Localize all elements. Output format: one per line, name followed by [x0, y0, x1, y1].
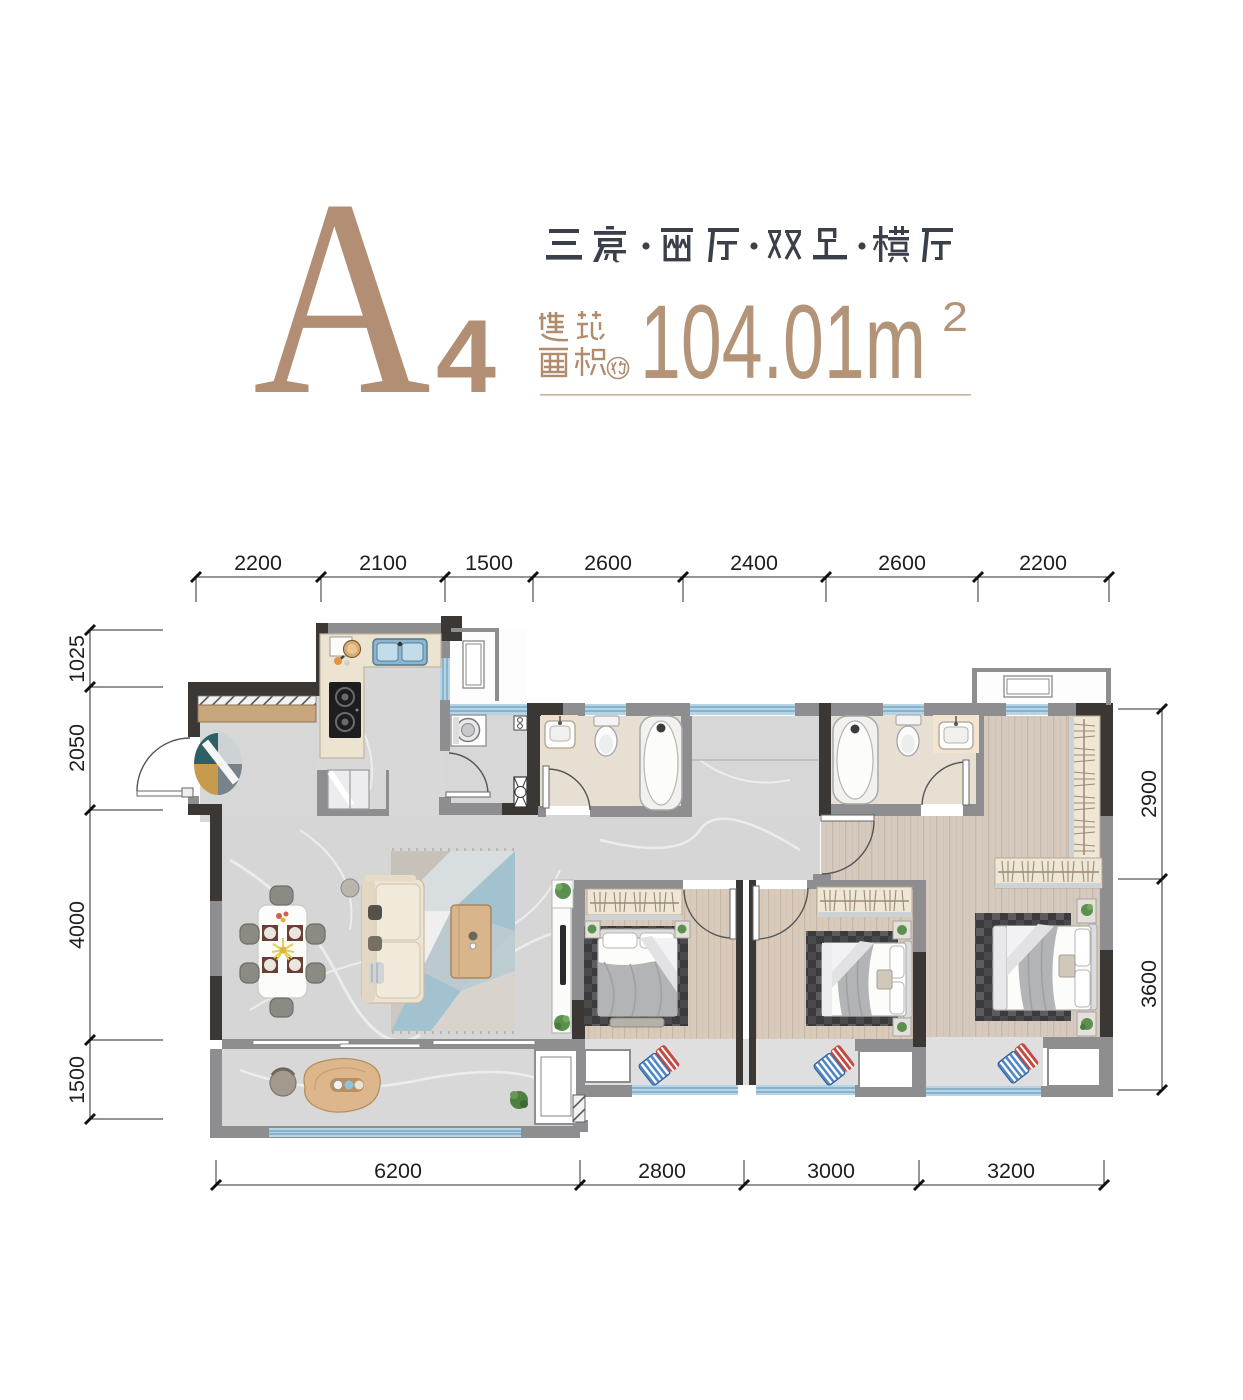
svg-text:2200: 2200	[1019, 551, 1067, 575]
svg-text:1500: 1500	[465, 551, 513, 575]
svg-text:2400: 2400	[730, 551, 778, 575]
svg-text:2800: 2800	[638, 1159, 686, 1183]
svg-text:104.01m: 104.01m	[640, 284, 926, 401]
svg-text:3200: 3200	[987, 1159, 1035, 1183]
svg-text:1500: 1500	[65, 1056, 89, 1104]
svg-text:A: A	[253, 142, 431, 453]
svg-text:2600: 2600	[878, 551, 926, 575]
svg-text:3600: 3600	[1137, 960, 1161, 1008]
svg-text:2900: 2900	[1137, 770, 1161, 818]
svg-text:2600: 2600	[584, 551, 632, 575]
svg-text:2: 2	[942, 293, 968, 340]
svg-text:3000: 3000	[807, 1159, 855, 1183]
svg-text:4000: 4000	[65, 901, 89, 949]
svg-text:4: 4	[436, 299, 496, 415]
svg-text:2100: 2100	[359, 551, 407, 575]
svg-text:6200: 6200	[374, 1159, 422, 1183]
svg-text:1025: 1025	[65, 635, 89, 683]
svg-text:2200: 2200	[234, 551, 282, 575]
svg-text:2050: 2050	[65, 724, 89, 772]
